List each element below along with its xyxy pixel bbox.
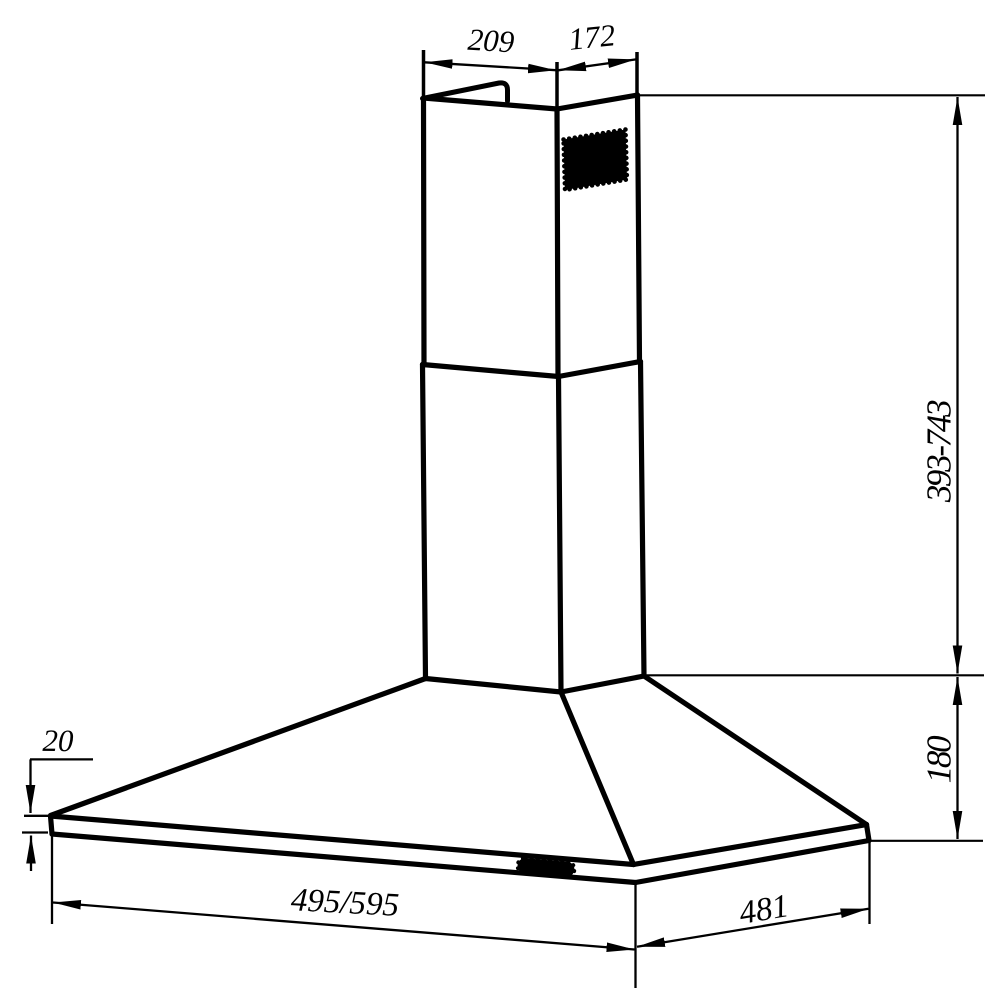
svg-text:393-743: 393-743 [920, 400, 959, 503]
svg-text:180: 180 [920, 735, 959, 783]
svg-text:20: 20 [42, 723, 74, 758]
svg-text:172: 172 [567, 17, 617, 57]
svg-text:495/595: 495/595 [290, 882, 400, 924]
svg-text:209: 209 [467, 22, 515, 60]
